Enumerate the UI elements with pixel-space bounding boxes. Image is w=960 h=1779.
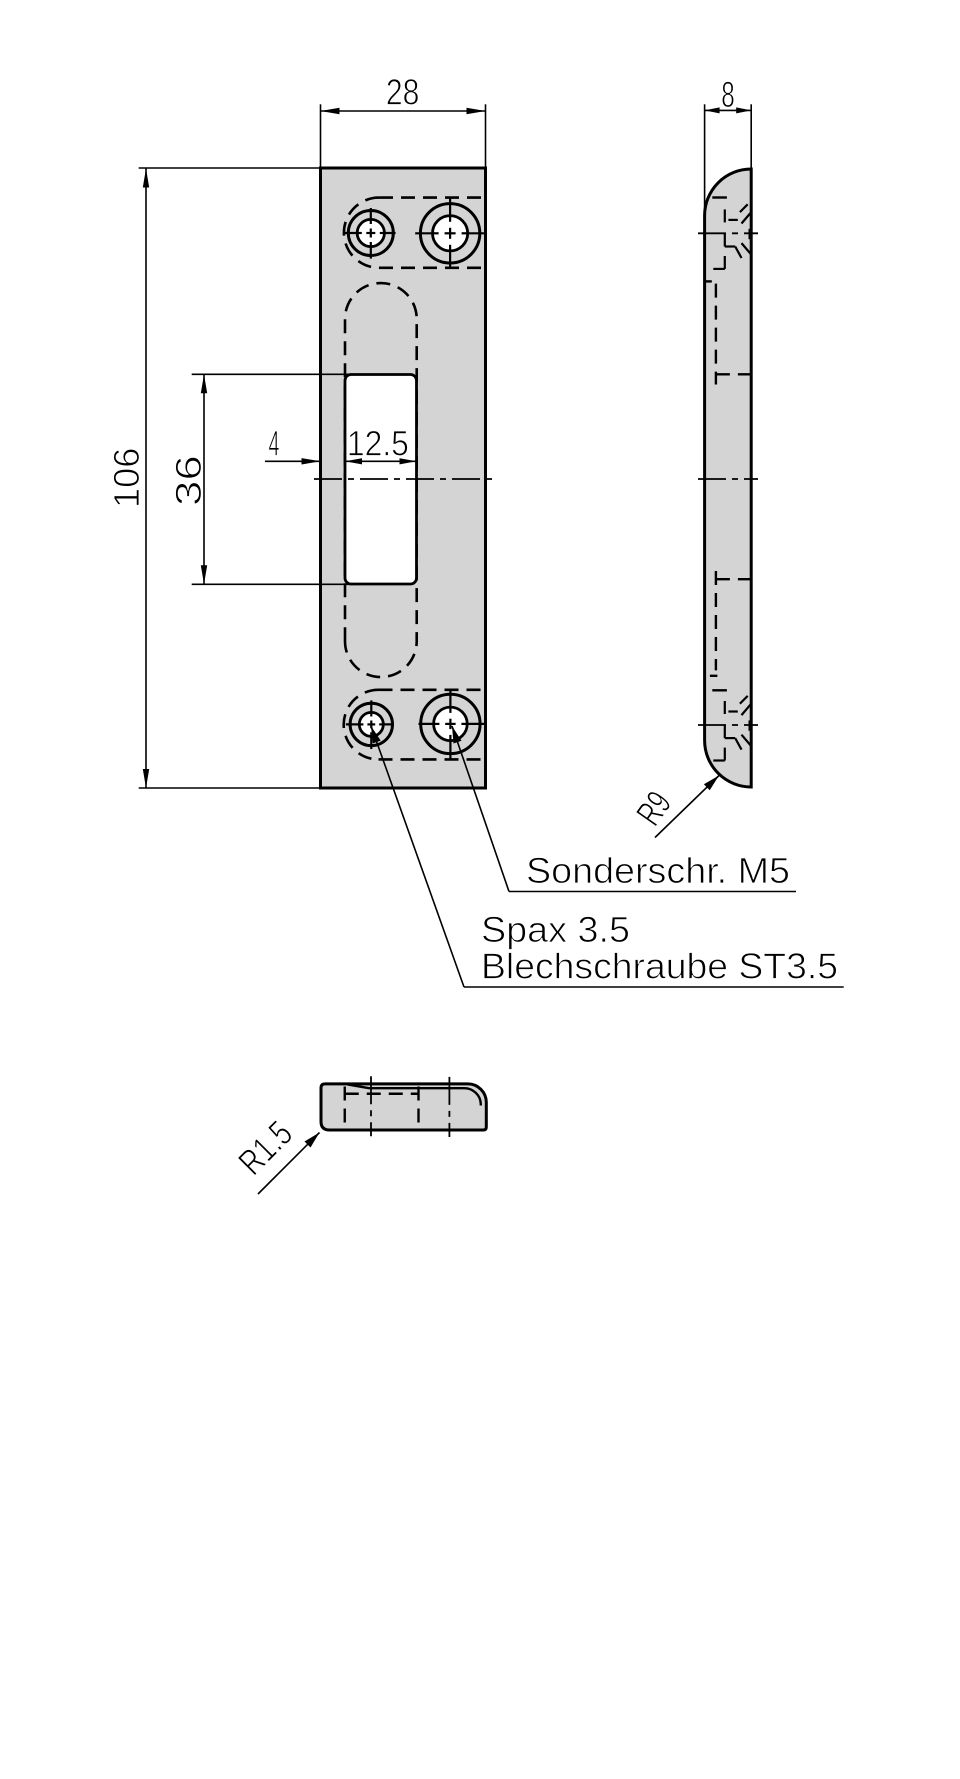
svg-text:36: 36 — [168, 455, 209, 506]
svg-text:106: 106 — [106, 448, 147, 508]
svg-text:R1.5: R1.5 — [230, 1113, 300, 1183]
svg-text:4: 4 — [269, 425, 280, 464]
svg-text:8: 8 — [721, 74, 735, 115]
svg-text:Sonderschr. M5: Sonderschr. M5 — [526, 850, 790, 891]
svg-text:28: 28 — [386, 72, 420, 113]
svg-text:Spax 3.5: Spax 3.5 — [481, 909, 630, 950]
svg-text:Blechschraube ST3.5: Blechschraube ST3.5 — [481, 946, 838, 987]
svg-text:12.5: 12.5 — [347, 425, 409, 464]
svg-text:R9: R9 — [628, 784, 679, 833]
